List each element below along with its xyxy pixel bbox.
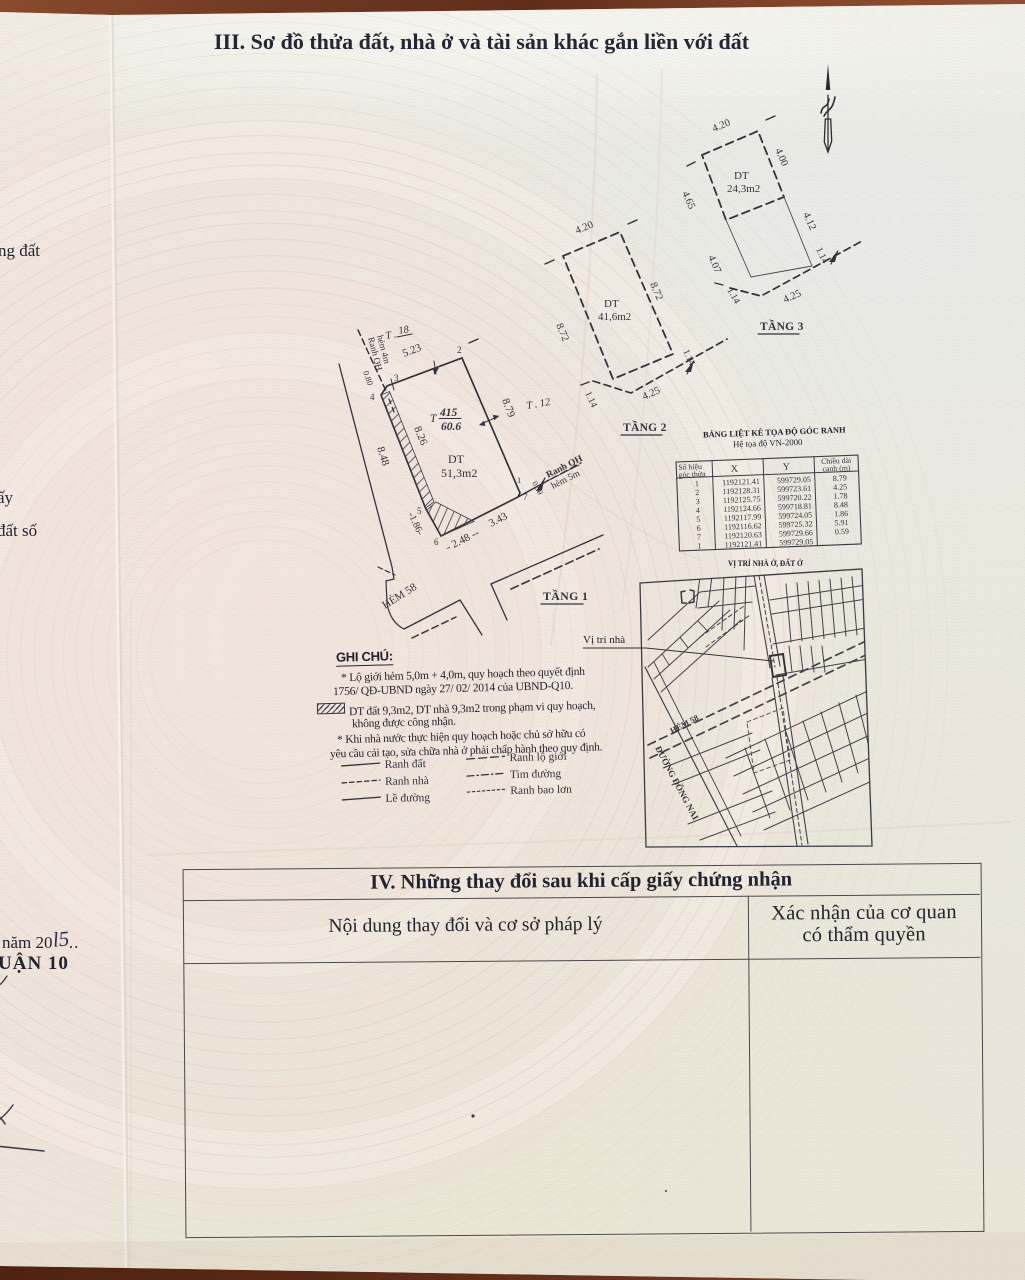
svg-text:DT: DT	[448, 452, 465, 466]
svg-text:3: 3	[394, 373, 399, 383]
svg-text:TẦNG 3: TẦNG 3	[760, 318, 804, 333]
svg-text:TẦNG 1: TẦNG 1	[543, 588, 588, 603]
svg-text:Ranh đất: Ranh đất	[385, 757, 427, 771]
svg-text:5: 5	[696, 515, 700, 524]
svg-text:6: 6	[434, 537, 439, 547]
svg-text:1: 1	[695, 479, 699, 488]
svg-text:41,6m2: 41,6m2	[598, 311, 631, 323]
svg-text:51,3m2: 51,3m2	[441, 466, 477, 480]
svg-text:DT: DT	[734, 170, 749, 182]
svg-text:4: 4	[370, 392, 375, 402]
svg-text:Ranh nhà: Ranh nhà	[385, 775, 429, 788]
svg-text:415: 415	[439, 407, 458, 419]
svg-text:7: 7	[697, 533, 701, 542]
svg-text:0.59: 0.59	[835, 527, 849, 537]
svg-text:60.6: 60.6	[441, 421, 461, 433]
svg-text:DT: DT	[604, 298, 619, 310]
svg-text:2: 2	[457, 346, 462, 356]
svg-text:góc thửa: góc thửa	[678, 469, 706, 479]
svg-text:1192121.41: 1192121.41	[724, 539, 762, 549]
svg-text:3: 3	[695, 497, 699, 506]
svg-text:Ranh bao lơn: Ranh bao lơn	[510, 784, 572, 797]
svg-text:5: 5	[417, 506, 422, 516]
svg-text:Lề đường: Lề đường	[385, 791, 430, 805]
svg-text:1: 1	[517, 475, 521, 485]
svg-text:24,3m2: 24,3m2	[727, 183, 760, 195]
svg-text:X: X	[731, 464, 739, 475]
svg-text:cạnh (m): cạnh (m)	[822, 463, 851, 473]
svg-text:2: 2	[695, 488, 699, 497]
svg-text:7: 7	[523, 492, 528, 502]
svg-text:6: 6	[696, 524, 700, 533]
svg-text:4: 4	[696, 506, 700, 515]
svg-text:Y: Y	[783, 462, 791, 473]
svg-text:TẦNG 2: TẦNG 2	[623, 419, 667, 434]
svg-text:Tim đường: Tim đường	[510, 768, 562, 781]
svg-text:599729.05: 599729.05	[779, 537, 813, 547]
svg-text:1: 1	[697, 541, 701, 550]
